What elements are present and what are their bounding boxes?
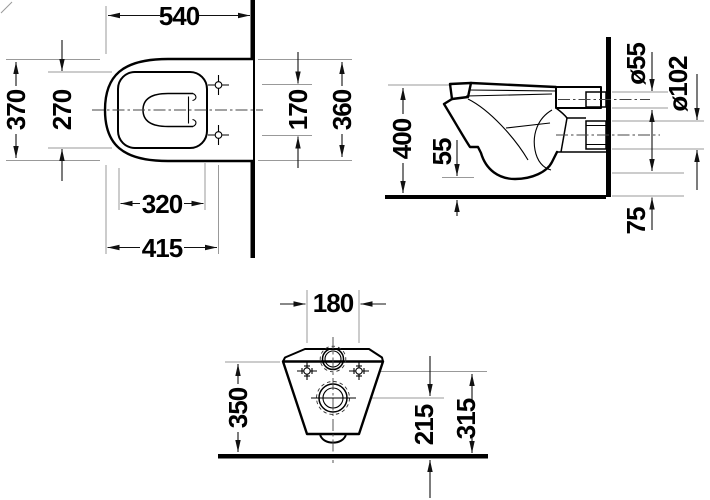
- side-dimension-labels: 400 55 ø55 ø102 75: [387, 43, 693, 235]
- dim-overall-depth: 540: [159, 1, 200, 31]
- dim-inlet-diameter: ø55: [621, 43, 651, 85]
- flush-inlet-spud: [556, 87, 606, 108]
- dim-bowl-clearance: 55: [427, 138, 457, 165]
- dim-connection-spacing: 180: [313, 288, 354, 318]
- toilet-side-profile: [444, 83, 660, 179]
- front-view: 180 350 215 315: [218, 288, 488, 498]
- dim-outlet-bottom-height: 75: [621, 207, 651, 234]
- dim-fixing-height: 315: [451, 398, 481, 439]
- plan-view: 540 370 270 320 415 170 360: [1, 0, 357, 263]
- dim-rim-height: 400: [387, 118, 417, 159]
- toilet-dimension-drawing: 540 370 270 320 415 170 360: [0, 0, 710, 500]
- floor-line: [385, 195, 606, 199]
- dim-fixing-spacing: 170: [283, 89, 313, 130]
- dim-front-to-fixing: 415: [142, 233, 183, 263]
- toilet-front-outline: [283, 337, 383, 463]
- side-view: 400 55 ø55 ø102 75: [385, 37, 704, 234]
- dim-rear-width: 360: [327, 89, 357, 130]
- wall-section: [606, 37, 611, 197]
- technical-drawing-page: 540 370 270 320 415 170 360: [0, 0, 710, 500]
- dim-outlet-center-height: 215: [409, 404, 439, 445]
- dim-body-height: 350: [223, 387, 253, 428]
- dim-bowl-inner-width: 270: [47, 89, 77, 130]
- dim-overall-width: 370: [1, 89, 31, 130]
- dim-bowl-inner-length: 320: [142, 189, 183, 219]
- toilet-plan-outline: [92, 59, 263, 161]
- floor-line: [218, 454, 488, 459]
- dim-outlet-diameter: ø102: [663, 56, 693, 112]
